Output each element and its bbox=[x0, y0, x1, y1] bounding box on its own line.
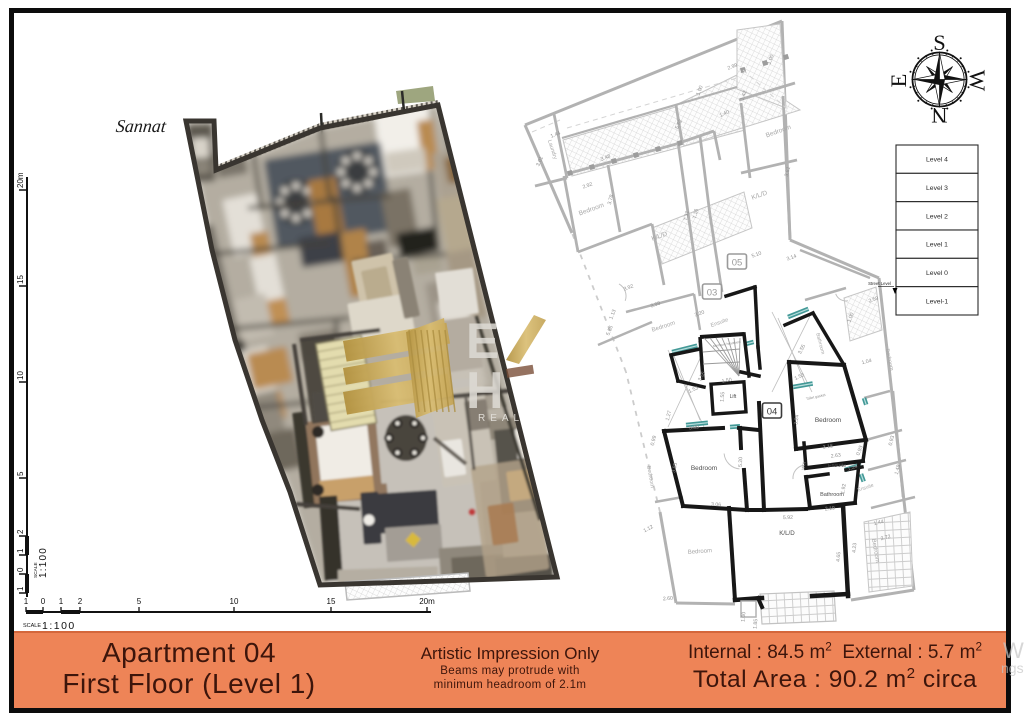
svg-text:15: 15 bbox=[16, 275, 25, 284]
svg-text:05: 05 bbox=[732, 258, 743, 269]
svg-text:S: S bbox=[933, 30, 946, 55]
svg-text:1.00: 1.00 bbox=[741, 612, 748, 623]
svg-text:Ensuite: Ensuite bbox=[828, 463, 846, 469]
svg-text:SCALE: SCALE bbox=[23, 623, 41, 629]
svg-text:10: 10 bbox=[16, 371, 25, 380]
svg-text:1:100: 1:100 bbox=[42, 620, 76, 632]
svg-text:Lift: Lift bbox=[730, 394, 737, 400]
svg-text:5.92: 5.92 bbox=[783, 515, 793, 521]
svg-text:K/L/D: K/L/D bbox=[779, 530, 795, 537]
svg-text:REAL: REAL bbox=[478, 413, 524, 424]
svg-text:03: 03 bbox=[707, 288, 718, 299]
svg-text:Level 3: Level 3 bbox=[926, 185, 948, 192]
svg-text:W: W bbox=[965, 70, 990, 92]
svg-text:4.23: 4.23 bbox=[852, 543, 859, 554]
svg-text:20m: 20m bbox=[16, 172, 25, 188]
svg-text:1: 1 bbox=[16, 548, 25, 553]
svg-text:Level 2: Level 2 bbox=[926, 213, 948, 220]
svg-text:Level 4: Level 4 bbox=[926, 157, 948, 164]
svg-text:5: 5 bbox=[16, 471, 25, 476]
svg-text:1: 1 bbox=[24, 597, 29, 606]
svg-text:3.61: 3.61 bbox=[784, 166, 792, 177]
svg-text:N: N bbox=[931, 103, 947, 128]
svg-text:1.85: 1.85 bbox=[753, 619, 760, 630]
svg-text:1.12: 1.12 bbox=[643, 524, 655, 534]
svg-text:0: 0 bbox=[41, 597, 46, 606]
svg-text:0: 0 bbox=[16, 567, 25, 572]
svg-text:5: 5 bbox=[137, 597, 142, 606]
svg-text:Street Level: Street Level bbox=[868, 281, 891, 286]
svg-text:3.09: 3.09 bbox=[689, 425, 700, 432]
svg-text:1: 1 bbox=[16, 586, 25, 591]
svg-text:4.65: 4.65 bbox=[836, 552, 843, 563]
svg-text:04: 04 bbox=[767, 407, 778, 418]
svg-text:E: E bbox=[466, 313, 499, 369]
svg-text:1:100: 1:100 bbox=[38, 547, 49, 578]
svg-text:15: 15 bbox=[327, 597, 336, 606]
svg-text:Level-1: Level-1 bbox=[926, 298, 949, 305]
svg-text:2.60: 2.60 bbox=[663, 596, 674, 603]
svg-text:2.19: 2.19 bbox=[825, 505, 836, 512]
svg-text:Bedroom: Bedroom bbox=[815, 417, 841, 424]
svg-text:1: 1 bbox=[59, 597, 64, 606]
svg-text:10: 10 bbox=[230, 597, 239, 606]
svg-text:1.55: 1.55 bbox=[720, 392, 727, 403]
svg-text:E: E bbox=[886, 74, 911, 88]
svg-text:2: 2 bbox=[16, 529, 25, 534]
svg-text:20m: 20m bbox=[419, 597, 435, 606]
svg-text:3.06: 3.06 bbox=[711, 502, 722, 509]
svg-text:H: H bbox=[466, 362, 504, 420]
svg-text:2: 2 bbox=[78, 597, 83, 606]
svg-text:Bedroom: Bedroom bbox=[691, 465, 717, 472]
svg-text:5.20: 5.20 bbox=[738, 457, 744, 467]
svg-text:Level 0: Level 0 bbox=[926, 270, 948, 277]
svg-text:Level 1: Level 1 bbox=[926, 242, 948, 249]
